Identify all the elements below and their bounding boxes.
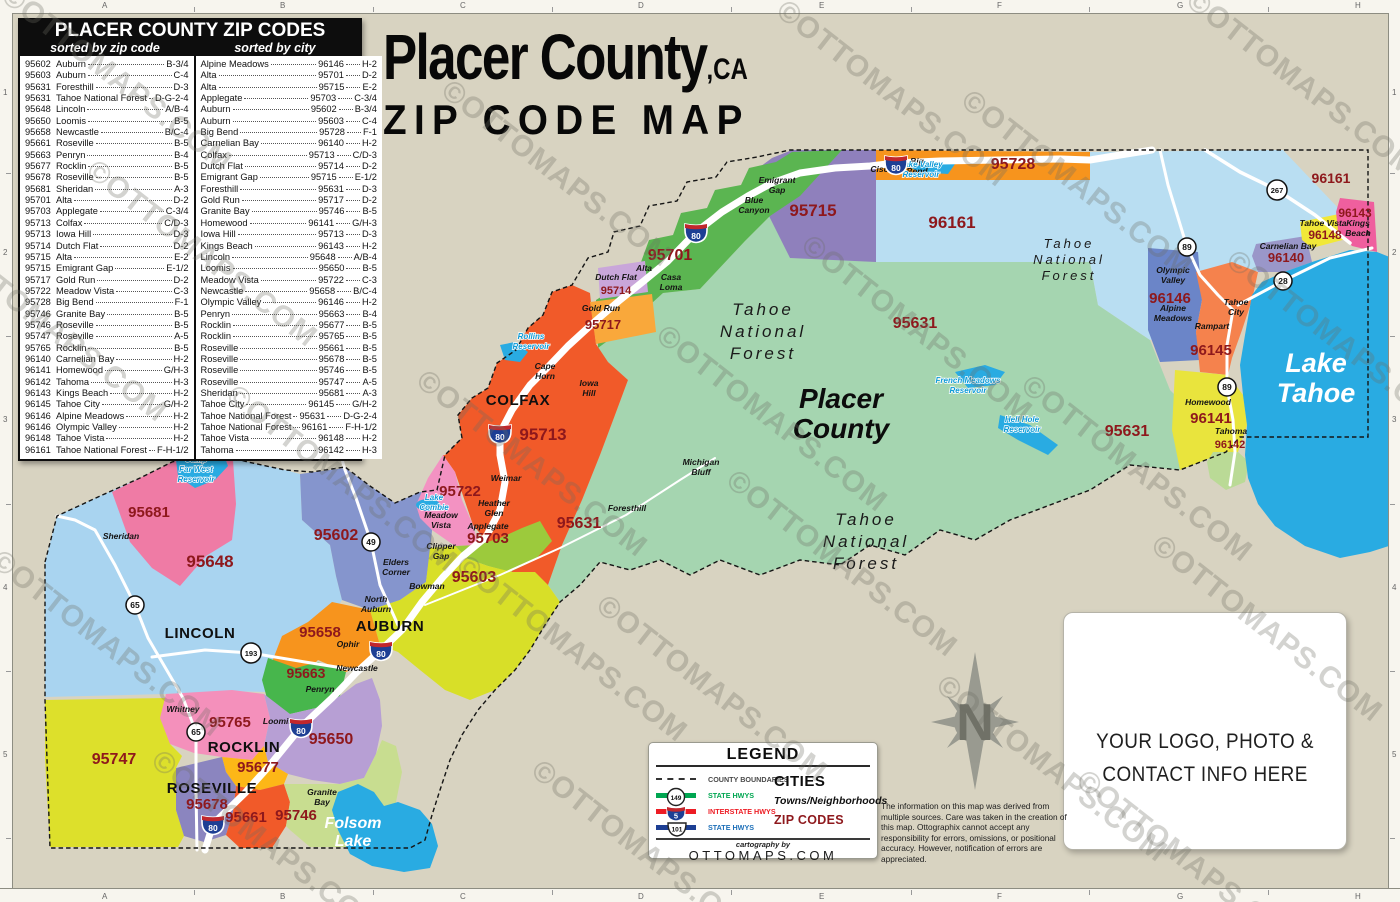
hwy-65-shield-icon: 65 xyxy=(126,596,144,614)
grid-tick xyxy=(6,336,11,337)
zip-table-row: 95747RosevilleA-5 xyxy=(22,331,192,342)
grid-tick xyxy=(1268,7,1269,12)
grid-tick xyxy=(911,7,912,12)
svg-text:267: 267 xyxy=(1271,186,1284,195)
zip-label-95658: 95658 xyxy=(299,624,341,641)
city-table-row: Tahoe Vista96148H-2 xyxy=(198,433,380,444)
town-label-carnelian-bay: Carnelian Bay xyxy=(1260,241,1318,251)
zip-table-row: 95681SheridanA-3 xyxy=(22,184,192,195)
legend: LEGEND COUNTY BOUNDARIES 149 STATE HWYS … xyxy=(648,742,878,859)
town-label-tahoe-vista: Tahoe Vista xyxy=(1299,218,1346,228)
city-table-row: Auburn95603C-4 xyxy=(198,116,380,127)
town-label-sheridan: Sheridan xyxy=(103,531,139,541)
hwy-49-shield-icon: 49 xyxy=(362,533,380,551)
svg-text:49: 49 xyxy=(366,537,376,547)
zip-label-95681: 95681 xyxy=(128,504,170,521)
town-label-newcastle: Newcastle xyxy=(336,663,378,673)
page-title: Placer County,CA ZIP CODE MAP xyxy=(383,24,863,143)
city-label-auburn: AUBURN xyxy=(356,618,425,635)
city-label-lincoln: LINCOLN xyxy=(165,625,236,642)
zip-table-left-header: sorted by zip code xyxy=(20,41,190,56)
zip-label-96161: 96161 xyxy=(1312,170,1351,186)
zip-table-row: 96161Tahoe National ForestF-H-1/2 xyxy=(22,445,192,456)
legend-title: LEGEND xyxy=(656,746,870,767)
legend-cities-label: CITIES xyxy=(774,773,868,790)
hwy-193-shield-icon: 193 xyxy=(241,643,261,663)
zip-table-row: 95713Iowa HillD-3 xyxy=(22,229,192,240)
city-table-row: Loomis95650B-5 xyxy=(198,263,380,274)
town-label-tahoma: Tahoma xyxy=(1215,426,1248,436)
zip-table-row: 95663PenrynB-4 xyxy=(22,150,192,161)
city-table-row: Sheridan95681A-3 xyxy=(198,388,380,399)
lake-label-lake-tahoe: LakeTahoe xyxy=(1277,348,1356,408)
zip-label-95650: 95650 xyxy=(309,731,354,748)
svg-text:28: 28 xyxy=(1278,276,1288,286)
town-label-north-auburn: NorthAuburn xyxy=(360,594,391,614)
us-hwy-101-shield-icon: 101 xyxy=(665,819,689,839)
city-table-row: Tahoe City96145G/H-2 xyxy=(198,399,380,410)
city-table-row: Emigrant Gap95715E-1/2 xyxy=(198,172,380,183)
zip-label-95603: 95603 xyxy=(452,569,497,586)
zip-table-row: 95650LoomisB-5 xyxy=(22,116,192,127)
zip-label-95602: 95602 xyxy=(314,527,359,544)
zip-table-row: 96141HomewoodG/H-3 xyxy=(22,365,192,376)
grid-letter-B: B xyxy=(280,1,285,10)
grid-number-4: 4 xyxy=(3,583,7,592)
town-label-penryn: Penryn xyxy=(306,684,335,694)
svg-text:89: 89 xyxy=(1222,382,1232,392)
zip-label-95722: 95722 xyxy=(439,483,481,500)
svg-text:80: 80 xyxy=(208,823,218,833)
grid-tick xyxy=(6,838,11,839)
svg-text:65: 65 xyxy=(130,600,140,610)
zip-label-95717: 95717 xyxy=(585,317,621,332)
zip-table-row: 96142TahomaH-3 xyxy=(22,377,192,388)
grid-letter-H: H xyxy=(1355,892,1361,901)
interstate-80-shield-icon: 80 xyxy=(885,156,907,175)
city-table-row: Newcastle95658B/C-4 xyxy=(198,286,380,297)
zip-table-column-by-zip: 95602AuburnB-3/495603AuburnC-495631Fores… xyxy=(20,56,194,459)
zip-table-row: 95631ForesthillD-3 xyxy=(22,82,192,93)
grid-number-1: 1 xyxy=(1392,88,1396,97)
town-label-cape-horn: CapeHorn xyxy=(535,361,556,381)
zip-label-95714: 95714 xyxy=(601,285,632,297)
grid-tick xyxy=(1390,173,1395,174)
interstate-80-shield-icon: 80 xyxy=(370,642,392,661)
town-label-whitney: Whitney xyxy=(166,704,200,714)
grid-number-2: 2 xyxy=(3,248,7,257)
hwy-89-shield-icon: 89 xyxy=(1178,238,1196,256)
zip-label-95677: 95677 xyxy=(237,759,279,776)
zip-table-row: 95722Meadow VistaC-3 xyxy=(22,286,192,297)
grid-number-4: 4 xyxy=(1392,583,1396,592)
zip-table-title: PLACER COUNTY ZIP CODES xyxy=(20,20,360,41)
grid-letter-C: C xyxy=(460,1,466,10)
city-table-row: Homewood96141G/H-3 xyxy=(198,218,380,229)
county-name-label: PlacerCounty xyxy=(793,383,891,444)
hwy-65-shield-icon: 65 xyxy=(187,723,205,741)
city-table-row: Granite Bay95746B-5 xyxy=(198,206,380,217)
town-label-homewood: Homewood xyxy=(1185,397,1232,407)
zip-label-95661: 95661 xyxy=(225,809,267,826)
interstate-80-shield-icon: 80 xyxy=(685,224,707,243)
grid-tick xyxy=(373,7,374,12)
city-table-row: Rocklin95677B-5 xyxy=(198,320,380,331)
zip-label-95631: 95631 xyxy=(1105,423,1150,440)
grid-tick xyxy=(6,671,11,672)
map-canvas: N 95602956039563195631956319564895650956… xyxy=(0,0,1400,902)
zip-table-row: 95678RosevilleB-5 xyxy=(22,172,192,183)
svg-text:193: 193 xyxy=(245,649,258,658)
city-table-row: Lincoln95648A/B-4 xyxy=(198,252,380,263)
grid-letter-A: A xyxy=(102,1,107,10)
hwy-267-shield-icon: 267 xyxy=(1267,180,1287,200)
zip-table-row: 95703ApplegateC-3/4 xyxy=(22,206,192,217)
zip-table-row: 95728Big BendF-1 xyxy=(22,297,192,308)
grid-tick xyxy=(552,7,553,12)
zip-table-row: 95765RocklinB-5 xyxy=(22,343,192,354)
city-table-row: Gold Run95717D-2 xyxy=(198,195,380,206)
logo-box-line2: CONTACT INFO HERE xyxy=(1102,759,1307,792)
grid-ruler-bottom: ABCDEFGH xyxy=(0,888,1400,902)
interstate-80-shield-icon: 80 xyxy=(489,425,511,444)
zip-label-95728: 95728 xyxy=(991,156,1036,173)
zip-table-row: 95717Gold RunD-2 xyxy=(22,275,192,286)
town-label-foresthill: Foresthill xyxy=(608,503,647,513)
city-table-row: Iowa Hill95713D-3 xyxy=(198,229,380,240)
zip-table-row: 95602AuburnB-3/4 xyxy=(22,59,192,70)
zip-table-column-by-city: Alpine Meadows96146H-2Alta95701D-2Alta95… xyxy=(196,56,382,459)
logo-placeholder-box: YOUR LOGO, PHOTO & CONTACT INFO HERE xyxy=(1063,612,1347,850)
grid-letter-F: F xyxy=(997,1,1002,10)
zip-table-row: 95713ColfaxC/D-3 xyxy=(22,218,192,229)
grid-number-3: 3 xyxy=(3,415,7,424)
zip-label-95765: 95765 xyxy=(209,714,251,731)
forest-label-0: TahoeNationalForest xyxy=(720,300,806,363)
svg-text:65: 65 xyxy=(191,727,201,737)
zip-table-row: 96146Alpine MeadowsH-2 xyxy=(22,411,192,422)
zip-label-95715: 95715 xyxy=(789,201,836,220)
grid-ruler-right: 12345 xyxy=(1388,13,1400,888)
interstate-80-shield-icon: 80 xyxy=(202,816,224,835)
grid-tick xyxy=(911,890,912,895)
grid-tick xyxy=(1089,890,1090,895)
grid-letter-C: C xyxy=(460,892,466,901)
city-label-roseville: ROSEVILLE xyxy=(167,780,257,797)
town-label-elders-corner: EldersCorner xyxy=(382,557,411,577)
grid-tick xyxy=(731,7,732,12)
zip-label-96141: 96141 xyxy=(1190,410,1232,427)
city-label-colfax: COLFAX xyxy=(486,392,550,409)
town-label-applegate: Applegate xyxy=(466,521,508,531)
zip-code-table: PLACER COUNTY ZIP CODES sorted by zip co… xyxy=(18,18,362,461)
town-label-casa-loma: CasaLoma xyxy=(660,272,683,292)
town-label-olympic-valley: OlympicValley xyxy=(1156,265,1190,285)
zip-label-95713: 95713 xyxy=(519,425,566,444)
svg-text:89: 89 xyxy=(1182,242,1192,252)
grid-letter-G: G xyxy=(1177,892,1183,901)
grid-tick xyxy=(731,890,732,895)
city-table-row: Alta95715E-2 xyxy=(198,82,380,93)
town-label-weimar: Weimar xyxy=(491,473,522,483)
svg-text:80: 80 xyxy=(296,726,306,736)
zip-label-96145: 96145 xyxy=(1190,342,1232,359)
town-label-dutch-flat: Dutch Flat xyxy=(595,272,638,282)
grid-tick xyxy=(1390,504,1395,505)
legend-state-hwys-green-label: STATE HWYS xyxy=(708,791,754,800)
interstate-80-shield-icon: 80 xyxy=(290,719,312,738)
title-sub: ZIP CODE MAP xyxy=(383,97,825,143)
grid-tick xyxy=(1390,336,1395,337)
zip-table-row: 96148Tahoe VistaH-2 xyxy=(22,433,192,444)
zip-table-row: 95603AuburnC-4 xyxy=(22,70,192,81)
town-label-rampart: Rampart xyxy=(1195,321,1231,331)
legend-brand: OTTOMAPS.COM xyxy=(656,849,870,863)
city-table-row: Tahoe National Forest95631D-G-2-4 xyxy=(198,411,380,422)
grid-letter-F: F xyxy=(997,892,1002,901)
city-table-row: Auburn95602B-3/4 xyxy=(198,104,380,115)
water-label-hell-hole-reservoir: Hell HoleReservoir xyxy=(1004,415,1042,434)
city-table-row: Big Bend95728F-1 xyxy=(198,127,380,138)
grid-tick xyxy=(6,173,11,174)
disclaimer-text: The information on this map was derived … xyxy=(881,801,1068,865)
zip-table-right-header: sorted by city xyxy=(190,41,360,56)
zip-table-row: 95661RosevilleB-5 xyxy=(22,138,192,149)
city-table-row: Roseville95747A-5 xyxy=(198,377,380,388)
zip-table-row: 95746RosevilleB-5 xyxy=(22,320,192,331)
city-table-row: Carnelian Bay96140H-2 xyxy=(198,138,380,149)
city-table-row: Alta95701D-2 xyxy=(198,70,380,81)
legend-interstate-hwys-label: INTERSTATE HWYS xyxy=(708,807,776,816)
zip-label-96142: 96142 xyxy=(1215,439,1246,451)
city-table-row: Kings Beach96143H-2 xyxy=(198,241,380,252)
grid-ruler-left: 12345 xyxy=(0,13,13,888)
zip-table-row: 96146Olympic ValleyH-2 xyxy=(22,422,192,433)
city-table-row: Tahoe National Forest96161F-H-1/2 xyxy=(198,422,380,433)
svg-text:80: 80 xyxy=(891,163,901,173)
svg-text:80: 80 xyxy=(691,231,701,241)
zip-table-row: 95715Emigrant GapE-1/2 xyxy=(22,263,192,274)
zip-label-95746: 95746 xyxy=(275,807,317,824)
zip-table-row: 96140Carnelian BayH-2 xyxy=(22,354,192,365)
legend-state-hwys-blue-label: STATE HWYS xyxy=(708,823,754,832)
city-table-row: Roseville95661B-5 xyxy=(198,343,380,354)
grid-number-2: 2 xyxy=(1392,248,1396,257)
grid-ruler-top: ABCDEFGH xyxy=(0,0,1400,14)
zip-table-row: 95677RocklinB-5 xyxy=(22,161,192,172)
town-label-kings-beach: KingsBeach xyxy=(1345,218,1371,238)
grid-tick xyxy=(1089,7,1090,12)
grid-letter-D: D xyxy=(638,1,644,10)
city-table-row: Roseville95678B-5 xyxy=(198,354,380,365)
zip-label-95703: 95703 xyxy=(467,530,509,547)
svg-text:80: 80 xyxy=(376,649,386,659)
svg-text:101: 101 xyxy=(672,826,683,833)
zip-table-row: 95715AltaE-2 xyxy=(22,252,192,263)
compass-north-letter: N xyxy=(956,694,994,752)
zip-label-96140: 96140 xyxy=(1268,250,1304,265)
hwy-89-shield-icon: 89 xyxy=(1218,378,1236,396)
forest-label-2: TahoeNationalForest xyxy=(1033,236,1105,283)
town-label-bowman: Bowman xyxy=(409,581,444,591)
legend-towns-label: Towns/Neighborhoods xyxy=(774,795,868,807)
zip-label-96161: 96161 xyxy=(928,213,975,232)
grid-tick xyxy=(1390,838,1395,839)
zip-table-row: 95648LincolnA/B-4 xyxy=(22,104,192,115)
grid-tick xyxy=(194,890,195,895)
town-label-gold-run: Gold Run xyxy=(582,303,620,313)
svg-text:80: 80 xyxy=(495,432,505,442)
grid-letter-E: E xyxy=(819,1,824,10)
grid-letter-A: A xyxy=(102,892,107,901)
zip-label-95648: 95648 xyxy=(186,552,233,571)
town-label-ophir: Ophir xyxy=(337,639,360,649)
city-table-row: Roseville95746B-5 xyxy=(198,365,380,376)
grid-tick xyxy=(1390,671,1395,672)
grid-number-5: 5 xyxy=(3,750,7,759)
zip-table-row: 95714Dutch FlatD-2 xyxy=(22,241,192,252)
forest-label-1: TahoeNationalForest xyxy=(823,510,909,573)
grid-letter-G: G xyxy=(1177,1,1183,10)
county-boundary-sample-icon xyxy=(656,778,696,780)
city-table-row: Applegate95703C-3/4 xyxy=(198,93,380,104)
grid-tick xyxy=(6,504,11,505)
city-table-row: Alpine Meadows96146H-2 xyxy=(198,59,380,70)
grid-tick xyxy=(552,890,553,895)
logo-box-line1: YOUR LOGO, PHOTO & xyxy=(1096,726,1314,759)
city-table-row: Tahoma96142H-3 xyxy=(198,445,380,456)
zip-table-row: 96145Tahoe CityG/H-2 xyxy=(22,399,192,410)
city-table-row: Penryn95663B-4 xyxy=(198,309,380,320)
grid-number-3: 3 xyxy=(1392,415,1396,424)
town-label-alta: Alta xyxy=(635,263,652,273)
legend-zip-codes-label: ZIP CODES xyxy=(774,813,868,827)
grid-letter-E: E xyxy=(819,892,824,901)
zip-table-row: 96143Kings BeachH-2 xyxy=(22,388,192,399)
city-table-row: Rocklin95765B-5 xyxy=(198,331,380,342)
zip-table-row: 95631Tahoe National ForestD-G-2-4 xyxy=(22,93,192,104)
grid-letter-H: H xyxy=(1355,1,1361,10)
grid-tick xyxy=(194,7,195,12)
svg-text:149: 149 xyxy=(671,795,682,802)
city-table-row: Meadow Vista95722C-3 xyxy=(198,275,380,286)
zip-label-96148: 96148 xyxy=(1308,228,1342,242)
city-table-row: Dutch Flat95714D-2 xyxy=(198,161,380,172)
grid-letter-D: D xyxy=(638,892,644,901)
city-table-row: Colfax95713C/D-3 xyxy=(198,150,380,161)
city-table-row: Olympic Valley96146H-2 xyxy=(198,297,380,308)
hwy-28-shield-icon: 28 xyxy=(1274,272,1292,290)
grid-number-1: 1 xyxy=(3,88,7,97)
zip-label-95678: 95678 xyxy=(186,796,228,813)
grid-tick xyxy=(373,890,374,895)
zip-label-95747: 95747 xyxy=(92,751,137,768)
town-label-loomis: Loomis xyxy=(263,716,293,726)
zip-table-row: 95746Granite BayB-5 xyxy=(22,309,192,320)
grid-number-5: 5 xyxy=(1392,750,1396,759)
zip-label-95631: 95631 xyxy=(557,515,602,532)
zip-label-95701: 95701 xyxy=(648,247,693,264)
zip-label-95663: 95663 xyxy=(287,665,326,681)
title-main: Placer County xyxy=(383,21,706,93)
zip-table-row: 95701AltaD-2 xyxy=(22,195,192,206)
city-table-row: Foresthill95631D-3 xyxy=(198,184,380,195)
zip-table-row: 95658NewcastleB/C-4 xyxy=(22,127,192,138)
zip-label-95631: 95631 xyxy=(893,315,938,332)
city-label-rocklin: ROCKLIN xyxy=(208,739,281,756)
grid-tick xyxy=(1268,890,1269,895)
grid-letter-B: B xyxy=(280,892,285,901)
title-suffix: ,CA xyxy=(706,53,747,86)
